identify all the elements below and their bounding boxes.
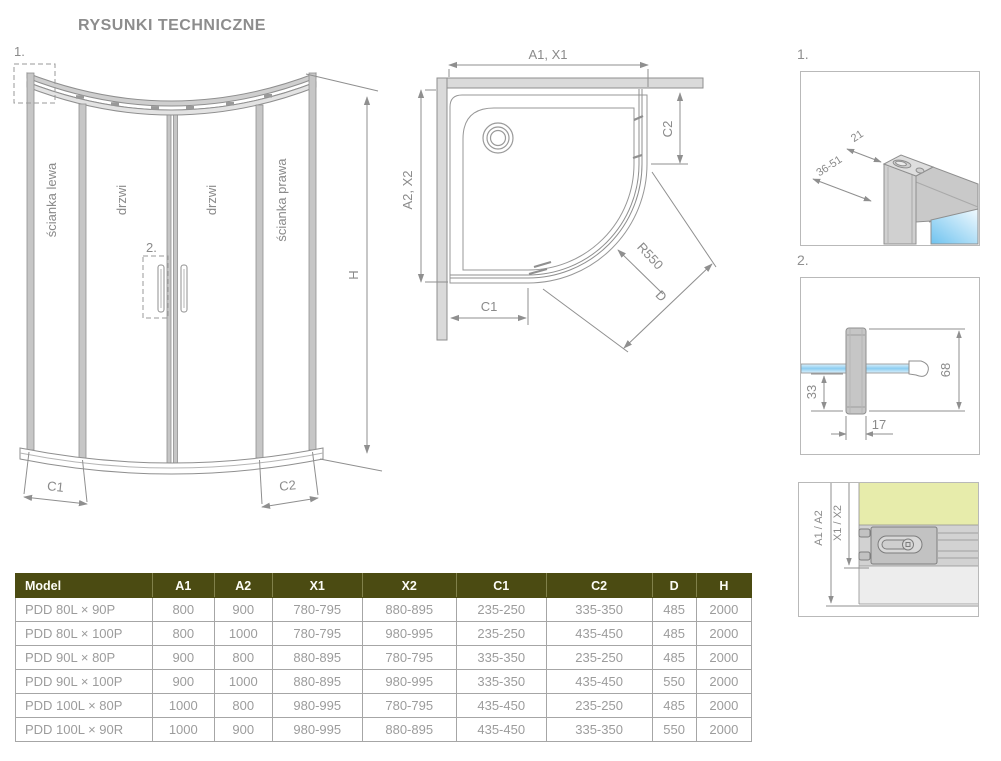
cell-x1: 980-995 (272, 694, 362, 718)
cell-a1: 900 (152, 670, 214, 694)
dim-x1x2-label: X1 / X2 (832, 505, 844, 541)
technical-drawing-page: RYSUNKI TECHNICZNE (0, 0, 1001, 761)
top-rail (27, 73, 316, 115)
dim-d-label: D (653, 287, 670, 304)
cell-c1: 435-450 (456, 718, 546, 742)
cell-x2: 980-995 (362, 670, 456, 694)
dim-c2-label: C2 (278, 477, 296, 494)
col-header-c2: C2 (546, 574, 652, 598)
adjustment-bracket (859, 527, 937, 564)
table-row: PDD 80L × 100P 800 1000 780-795 980-995 … (16, 622, 752, 646)
table-row: PDD 90L × 80P 900 800 880-895 780-795 33… (16, 646, 752, 670)
dim-33-label: 33 (804, 385, 819, 399)
cell-d: 550 (652, 670, 696, 694)
cell-x1: 880-895 (272, 646, 362, 670)
table-row: PDD 80L × 90P 800 900 780-795 880-895 23… (16, 598, 752, 622)
cell-a1: 800 (152, 598, 214, 622)
cell-a2: 900 (214, 598, 272, 622)
cell-model: PDD 90L × 100P (16, 670, 153, 694)
dim-a1a2-label: A1 / A2 (813, 510, 825, 545)
cell-c1: 235-250 (456, 598, 546, 622)
cell-x2: 980-995 (362, 622, 456, 646)
detail-1-marker: 1. (797, 46, 809, 62)
glass-section (859, 566, 978, 604)
cell-c2: 235-250 (546, 646, 652, 670)
dim-c2-top-label: C2 (660, 121, 675, 138)
cell-d: 550 (652, 718, 696, 742)
cell-x1: 780-795 (272, 622, 362, 646)
dim-17-label: 17 (872, 417, 886, 432)
dim-68-label: 68 (938, 363, 953, 377)
front-view-drawing: 1. 2. ścianka lewa drzwi drzwi ścianka p… (10, 40, 385, 545)
cell-c1: 335-350 (456, 646, 546, 670)
col-header-x2: X2 (362, 574, 456, 598)
page-title: RYSUNKI TECHNICZNE (78, 17, 266, 35)
front-marker-2: 2. (146, 240, 157, 255)
table-row: PDD 100L × 80P 1000 800 980-995 780-795 … (16, 694, 752, 718)
detail-1-box: 21 36-51 (800, 71, 980, 246)
col-header-model: Model (16, 574, 153, 598)
cell-x1: 980-995 (272, 718, 362, 742)
cell-a1: 1000 (152, 718, 214, 742)
cell-c2: 335-350 (546, 598, 652, 622)
label-left-wall: ścianka lewa (44, 162, 59, 237)
col-header-c1: C1 (456, 574, 546, 598)
dim-a2x2-label: A2, X2 (400, 170, 415, 209)
table-row: PDD 100L × 90R 1000 900 980-995 880-895 … (16, 718, 752, 742)
cell-c1: 435-450 (456, 694, 546, 718)
cell-c2: 435-450 (546, 670, 652, 694)
cell-h: 2000 (696, 694, 751, 718)
col-header-a1: A1 (152, 574, 214, 598)
cell-x2: 780-795 (362, 646, 456, 670)
cell-model: PDD 100L × 80P (16, 694, 153, 718)
dim-21-label: 21 (849, 128, 866, 145)
cell-a1: 1000 (152, 694, 214, 718)
cell-a1: 800 (152, 622, 214, 646)
cell-c2: 235-250 (546, 694, 652, 718)
dim-r550-label: R550 (634, 239, 666, 272)
detail-2-box: 68 33 17 (800, 277, 980, 455)
cell-x2: 880-895 (362, 598, 456, 622)
shower-tray (450, 95, 647, 283)
label-right-wall: ścianka prawa (274, 158, 289, 242)
cell-h: 2000 (696, 598, 751, 622)
front-marker-1: 1. (14, 44, 25, 59)
dim-h (306, 74, 382, 471)
table-row: PDD 90L × 100P 900 1000 880-895 980-995 … (16, 670, 752, 694)
detail-3-box: A1 / A2 X1 / X2 (798, 482, 979, 617)
handle-end-cap (909, 361, 928, 376)
tray-rim (20, 448, 323, 474)
spec-table: Model A1 A2 X1 X2 C1 C2 D H PDD 80L × 90… (15, 573, 752, 742)
cell-a2: 900 (214, 718, 272, 742)
cell-h: 2000 (696, 718, 751, 742)
cell-c2: 335-350 (546, 718, 652, 742)
door-handles (158, 265, 187, 312)
cell-d: 485 (652, 598, 696, 622)
cell-c1: 335-350 (456, 670, 546, 694)
col-header-x1: X1 (272, 574, 362, 598)
cell-x1: 880-895 (272, 670, 362, 694)
cell-model: PDD 100L × 90R (16, 718, 153, 742)
cell-h: 2000 (696, 622, 751, 646)
cell-a2: 800 (214, 646, 272, 670)
detail-2-marker: 2. (797, 252, 809, 268)
cell-d: 485 (652, 694, 696, 718)
top-view-drawing: A1, X1 A2, X2 C2 C1 R550 D (395, 45, 755, 365)
wall-section (859, 483, 978, 525)
dim-c1-label: C1 (46, 478, 64, 495)
cell-model: PDD 80L × 90P (16, 598, 153, 622)
col-header-h: H (696, 574, 751, 598)
detail-2-drawing: 68 33 17 (801, 278, 979, 454)
cell-d: 485 (652, 622, 696, 646)
dim-36-51-label: 36-51 (814, 154, 844, 179)
cell-a1: 900 (152, 646, 214, 670)
label-door-1: drzwi (114, 185, 129, 215)
cell-x1: 780-795 (272, 598, 362, 622)
cell-c2: 435-450 (546, 622, 652, 646)
vertical-profiles (27, 73, 316, 464)
dim-a1x1-label: A1, X1 (528, 47, 567, 62)
label-door-2: drzwi (204, 185, 219, 215)
cell-h: 2000 (696, 670, 751, 694)
col-header-d: D (652, 574, 696, 598)
table-header-row: Model A1 A2 X1 X2 C1 C2 D H (16, 574, 752, 598)
cell-model: PDD 80L × 100P (16, 622, 153, 646)
cell-model: PDD 90L × 80P (16, 646, 153, 670)
cell-x2: 880-895 (362, 718, 456, 742)
cell-a2: 1000 (214, 622, 272, 646)
cell-h: 2000 (696, 646, 751, 670)
cell-a2: 800 (214, 694, 272, 718)
cell-d: 485 (652, 646, 696, 670)
dim-c1-top-label: C1 (481, 299, 498, 314)
handle-bar (846, 328, 866, 414)
cell-c1: 235-250 (456, 622, 546, 646)
detail-3-drawing: A1 / A2 X1 / X2 (799, 483, 978, 616)
dim-h-label: H (346, 270, 361, 279)
cell-x2: 780-795 (362, 694, 456, 718)
col-header-a2: A2 (214, 574, 272, 598)
cell-a2: 1000 (214, 670, 272, 694)
detail-1-drawing: 21 36-51 (801, 72, 979, 245)
